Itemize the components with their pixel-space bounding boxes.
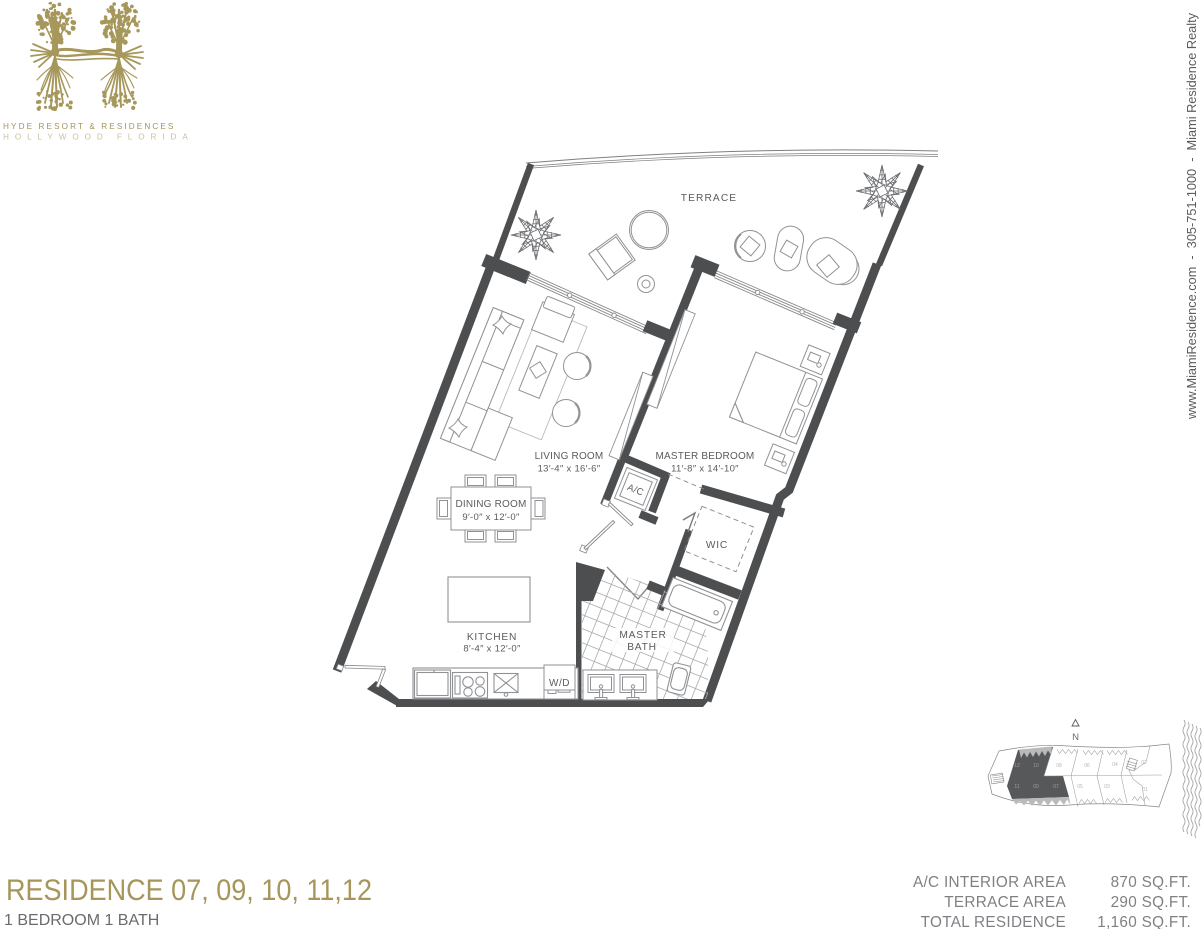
svg-text:9′-0″ x 12′-0″: 9′-0″ x 12′-0″ [462,512,520,523]
svg-text:A/C INTERIOR AREA: A/C INTERIOR AREA [913,874,1066,891]
svg-text:RESIDENCE 07, 09, 10, 11,12: RESIDENCE 07, 09, 10, 11,12 [6,874,372,907]
svg-text:MASTER: MASTER [619,630,666,641]
svg-text:8′-4″ x 12′-0″: 8′-4″ x 12′-0″ [463,644,521,655]
svg-text:07: 07 [1053,784,1059,790]
svg-text:290 SQ.FT.: 290 SQ.FT. [1111,894,1191,911]
svg-text:08: 08 [1056,763,1062,769]
svg-text:1 BEDROOM 1 BATH: 1 BEDROOM 1 BATH [4,912,159,929]
svg-text:01: 01 [1142,787,1148,793]
svg-text:11: 11 [1014,784,1019,790]
svg-text:www.MiamiResidence.com - 305: www.MiamiResidence.com - 305-751-1000 - … [1185,12,1199,420]
svg-text:11′-8″ x 14′-10″: 11′-8″ x 14′-10″ [671,464,739,475]
svg-text:HYDE RESORT & RESIDENCES: HYDE RESORT & RESIDENCES [3,122,175,131]
svg-text:MASTER BEDROOM: MASTER BEDROOM [656,451,755,462]
svg-text:TERRACE: TERRACE [681,193,737,204]
svg-text:1,160 SQ.FT.: 1,160 SQ.FT. [1097,914,1191,929]
svg-text:LIVING ROOM: LIVING ROOM [535,451,604,462]
svg-text:BATH: BATH [627,642,657,653]
svg-text:TERRACE AREA: TERRACE AREA [944,894,1066,911]
svg-text:HOLLYWOOD FLORIDA: HOLLYWOOD FLORIDA [3,133,194,142]
svg-text:02: 02 [1141,760,1147,766]
svg-text:KITCHEN: KITCHEN [467,632,517,643]
svg-text:10: 10 [1033,763,1039,769]
svg-text:13′-4″ x 16′-6″: 13′-4″ x 16′-6″ [538,464,601,475]
svg-text:TOTAL RESIDENCE: TOTAL RESIDENCE [921,914,1066,929]
svg-text:04: 04 [1112,762,1118,768]
svg-text:W/D: W/D [549,678,570,689]
svg-text:DINING ROOM: DINING ROOM [455,499,526,510]
svg-text:06: 06 [1084,763,1090,769]
svg-text:09: 09 [1033,784,1039,790]
svg-text:05: 05 [1077,784,1083,790]
svg-text:N: N [1072,732,1079,743]
svg-text:03: 03 [1104,784,1110,790]
svg-text:870 SQ.FT.: 870 SQ.FT. [1111,874,1191,891]
svg-text:WIC: WIC [706,540,728,551]
svg-text:12: 12 [1014,763,1020,769]
